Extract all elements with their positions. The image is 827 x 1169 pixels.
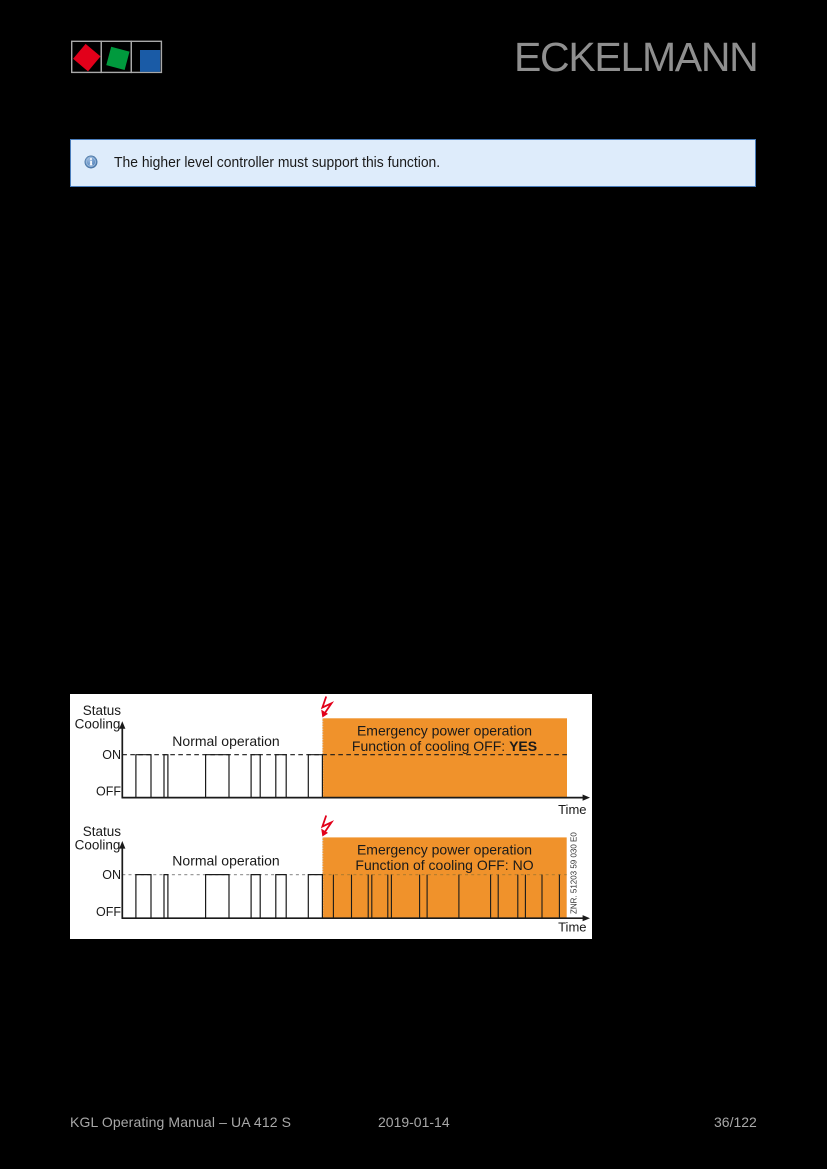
- svg-text:Emergency power operation: Emergency power operation: [357, 722, 532, 738]
- svg-text:ZNR. 51203 59 030 E0: ZNR. 51203 59 030 E0: [570, 832, 579, 914]
- svg-text:Cooling: Cooling: [75, 837, 121, 852]
- svg-text:OFF: OFF: [96, 785, 121, 799]
- svg-text:ON: ON: [102, 748, 121, 762]
- svg-text:Time: Time: [558, 919, 586, 934]
- svg-text:Normal operation: Normal operation: [172, 853, 279, 869]
- svg-text:Normal operation: Normal operation: [172, 733, 279, 749]
- svg-text:Emergency power operation: Emergency power operation: [357, 841, 532, 857]
- svg-text:OFF: OFF: [96, 905, 121, 919]
- svg-text:Time: Time: [558, 802, 586, 817]
- svg-text:ON: ON: [102, 868, 121, 882]
- svg-text:Function of cooling OFF: NO: Function of cooling OFF: NO: [355, 857, 533, 873]
- svg-text:Cooling: Cooling: [75, 716, 121, 731]
- svg-text:Function of cooling OFF: YES: Function of cooling OFF: YES: [352, 738, 537, 754]
